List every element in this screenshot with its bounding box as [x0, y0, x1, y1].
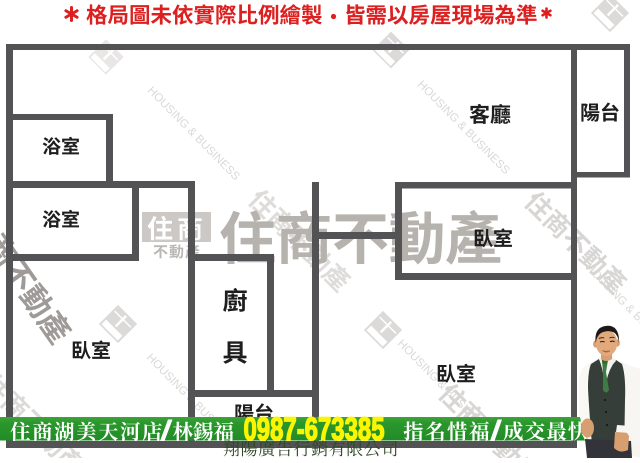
svg-text:0987-673385: 0987-673385 — [244, 411, 385, 447]
